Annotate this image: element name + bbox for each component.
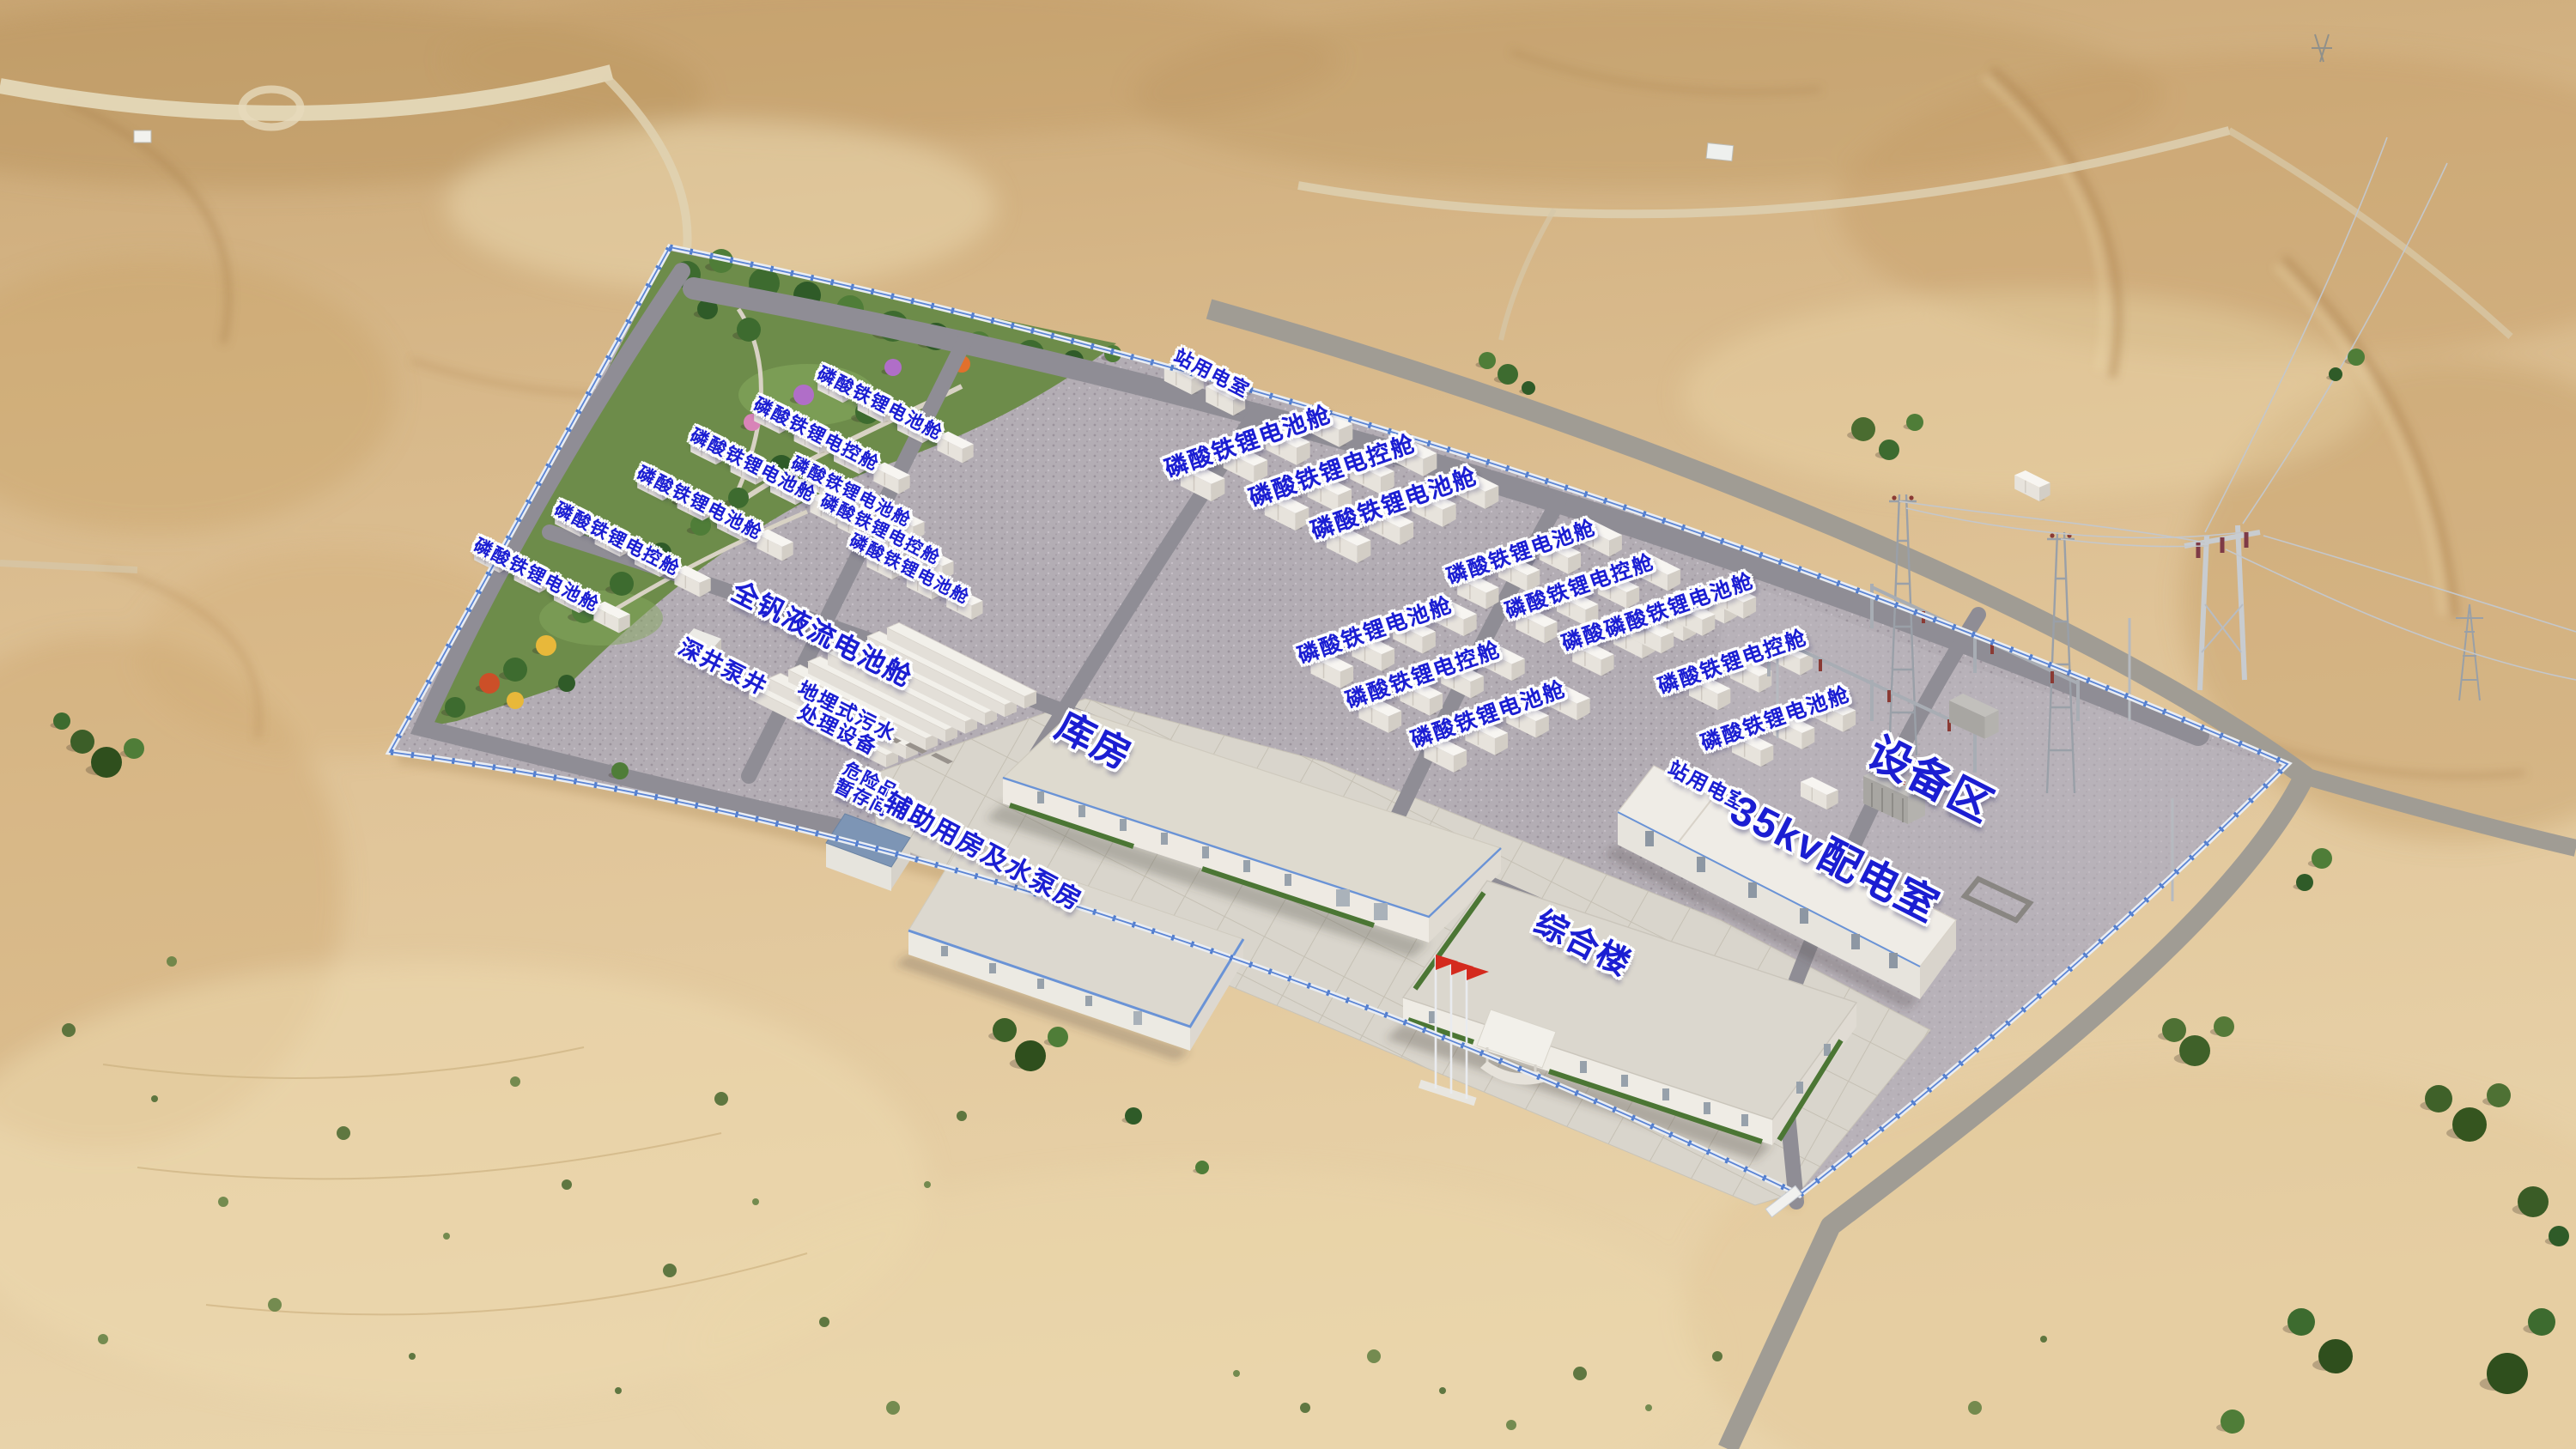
garden-tree-icon [884,359,902,376]
desert-tree-icon [91,747,122,778]
garden-tree-icon [610,572,634,596]
desert-tree-icon [1879,440,1899,460]
garden-tree-icon [503,658,527,682]
shrub-icon [98,1334,108,1344]
shrub-icon [167,956,177,967]
shrub-icon [1300,1403,1310,1413]
aerial-rendering-stage: 站用电室 磷酸铁锂电池舱 磷酸铁锂电控舱 磷酸铁锂电池舱 磷酸铁锂电池舱 磷酸铁… [0,0,2576,1449]
garden-tree-icon [728,488,749,508]
shrub-icon [714,1092,728,1106]
desert-tree-icon [2487,1353,2528,1394]
shrub-icon [752,1198,759,1205]
desert-tree-icon [2528,1308,2555,1336]
desert-tree-icon [2487,1083,2511,1107]
desert-tree-icon [611,762,629,779]
desert-tree-icon [1851,417,1875,441]
desert-tree-icon [1479,352,1496,369]
shrub-icon [1506,1420,1516,1430]
desert-tree-icon [993,1018,1017,1042]
shrub-icon [1645,1404,1652,1411]
shrub-icon [2040,1336,2047,1343]
desert-tree-icon [124,738,144,759]
shrub-icon [1367,1349,1381,1363]
desert-tree-icon [2425,1085,2452,1113]
desert-tree-icon [2214,1016,2234,1037]
shrub-icon [957,1111,967,1121]
shrub-icon [1233,1370,1240,1377]
desert-tree-icon [2287,1308,2315,1336]
desert-tree-icon [53,712,70,730]
desert-tree-icon [2348,349,2365,366]
shrub-icon [218,1197,228,1207]
shrub-icon [62,1023,76,1037]
desert-tree-icon [2296,874,2313,891]
garden-tree-icon [558,675,575,692]
desert-tree-icon [1125,1107,1142,1125]
shrub-icon [663,1264,677,1277]
garden-tree-icon [793,385,814,405]
desert-tree-icon [1522,381,1535,395]
desert-tree-icon [1906,414,1923,431]
shrub-icon [924,1181,931,1188]
desert-tree-icon [1048,1027,1068,1047]
desert-tree-icon [2518,1186,2549,1217]
garden-tree-icon [536,635,556,656]
desert-tree-icon [70,730,94,754]
shrub-icon [1712,1351,1722,1361]
desert-tree-icon [2221,1410,2245,1434]
shrub-icon [1439,1387,1446,1394]
shrub-icon [409,1353,416,1360]
garden-tree-icon [737,318,761,342]
desert-tree-icon [2179,1035,2210,1066]
desert-tree-icon [2318,1339,2353,1373]
shrub-icon [562,1179,572,1190]
shrub-icon [886,1401,900,1415]
garden-tree-icon [507,692,524,709]
shrub-icon [1573,1367,1587,1380]
garden-tree-icon [479,673,500,694]
desert-tree-icon [2162,1018,2186,1042]
shrub-icon [268,1298,282,1312]
shrub-icon [151,1095,158,1102]
site-plan-scene [0,0,2576,1449]
shrub-icon [615,1387,622,1394]
desert-tree-icon [2549,1226,2569,1246]
desert-tree-icon [1015,1040,1046,1071]
shrub-icon [337,1126,350,1140]
screenshot-root: 站用电室 磷酸铁锂电池舱 磷酸铁锂电控舱 磷酸铁锂电池舱 磷酸铁锂电池舱 磷酸铁… [0,0,2576,1449]
desert-tree-icon [2312,848,2332,869]
garden-tree-icon [445,697,465,718]
desert-tree-icon [1498,364,1518,385]
shrub-icon [510,1076,520,1087]
desert-tree-icon [2329,367,2342,381]
desert-tree-icon [1195,1161,1209,1174]
desert-tree-icon [2452,1107,2487,1142]
shrub-icon [1968,1401,1982,1415]
shrub-icon [443,1233,450,1240]
shrub-icon [819,1317,829,1327]
